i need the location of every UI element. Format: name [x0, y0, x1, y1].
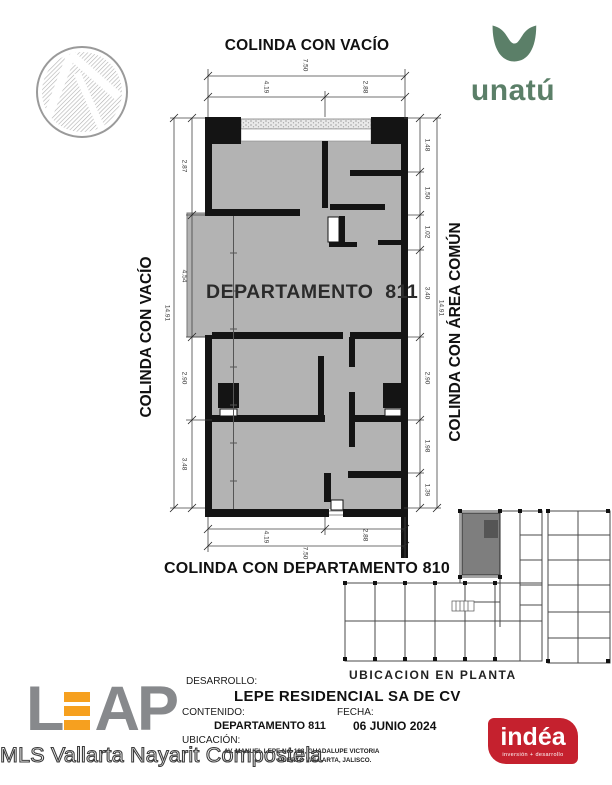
dim-right-seg: 1.39 — [424, 484, 431, 497]
dim-left-seg: 4.54 — [181, 270, 188, 283]
fecha-value: 06 JUNIO 2024 — [353, 719, 436, 733]
seal-logo — [37, 47, 127, 137]
unatu-icon — [493, 26, 537, 62]
dim-right-total: 14.91 — [438, 300, 445, 316]
leap-e-bars — [64, 692, 90, 730]
floorplan-sheet: COLINDA CON VACÍO unatú COLINDA CON VACÍ… — [0, 0, 612, 785]
dim-left-seg: 3.48 — [181, 458, 188, 471]
dim-right-seg: 2.90 — [424, 372, 431, 385]
unatu-wordmark: unatú — [462, 74, 564, 108]
dim-bottom-seg: 2.88 — [362, 529, 369, 542]
dim-right-seg: 3.40 — [424, 287, 431, 300]
boundary-bottom-label: COLINDA CON DEPARTAMENTO 810 — [157, 560, 457, 578]
contenido-label: CONTENIDO: — [182, 707, 245, 718]
floor-plan — [187, 117, 408, 558]
indea-tagline: inversión + desarrollo — [502, 752, 563, 758]
dim-top-seg: 2.88 — [362, 81, 369, 94]
indea-name: indéa — [500, 725, 565, 750]
dim-bottom-total: 7.50 — [302, 547, 309, 560]
leap-letters-ap: AP — [94, 687, 176, 732]
desarrollo-value: LEPE RESIDENCIAL SA DE CV — [234, 688, 461, 705]
dim-right-seg: 1.50 — [424, 187, 431, 200]
dim-bottom-seg: 4.19 — [263, 531, 270, 544]
indea-logo: indéa inversión + desarrollo — [488, 718, 578, 764]
boundary-right-label: COLINDA CON ÁREA COMÚN — [447, 222, 465, 441]
dim-left-seg: 2.90 — [181, 372, 188, 385]
boundary-left-label: COLINDA CON VACÍO — [138, 256, 156, 417]
keyplan-caption: UBICACION EN PLANTA — [349, 668, 511, 682]
dim-left-seg: 2.87 — [181, 160, 188, 173]
fecha-label: FECHA: — [337, 707, 374, 718]
watermark-text: MLS Vallarta Nayarit Compostela — [0, 743, 360, 768]
leap-letter-l: L — [26, 687, 61, 732]
dim-top-seg: 4.19 — [263, 81, 270, 94]
dim-right-seg: 1.48 — [424, 139, 431, 152]
leap-logo: L AP — [26, 687, 176, 732]
desarrollo-label: DESARROLLO: — [186, 676, 257, 687]
dim-right-seg: 1.98 — [424, 440, 431, 453]
dim-top-total: 7.50 — [302, 59, 309, 72]
keyplan — [343, 509, 610, 663]
dim-left-total: 14.91 — [164, 305, 171, 321]
dim-right-seg: 1.02 — [424, 226, 431, 239]
drawing-layer — [0, 0, 612, 785]
boundary-top-label: COLINDA CON VACÍO — [207, 37, 407, 55]
contenido-value: DEPARTAMENTO 811 — [214, 720, 326, 732]
plan-title: DEPARTAMENTO 811 — [206, 281, 406, 304]
